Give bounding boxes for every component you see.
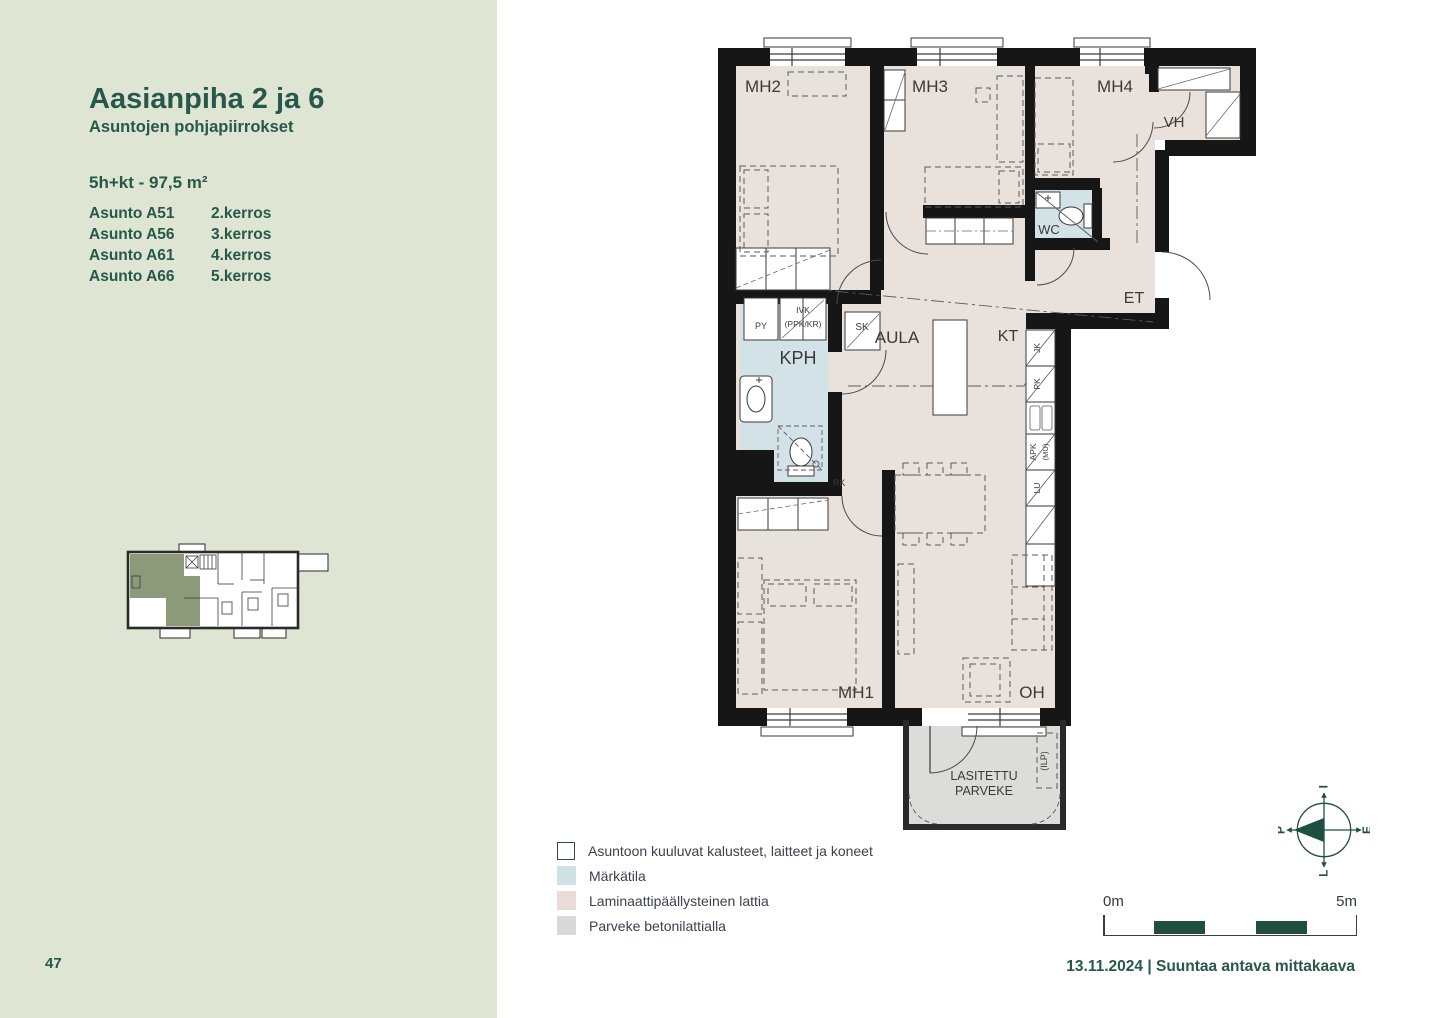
compass-letter-right: E — [1360, 826, 1370, 834]
apartment-row: Asunto A61 4.kerros — [89, 245, 324, 266]
room-label-wc: WC — [1038, 222, 1060, 237]
label-lu: LU — [1032, 483, 1042, 494]
room-label-mh2: MH2 — [745, 77, 781, 96]
balcony-label-1: LASITETTU — [950, 769, 1017, 783]
sidebar: Aasianpiha 2 ja 6 Asuntojen pohjapiirrok… — [0, 0, 497, 1018]
footer-date: 13.11.2024 — [1066, 958, 1143, 975]
legend-row: Märkätila — [557, 866, 873, 885]
scale-end-label: 5m — [1336, 893, 1357, 910]
apartment-floor: 5.kerros — [211, 266, 271, 287]
compass-letter-bottom: L — [1317, 870, 1331, 876]
apartment-floor: 3.kerros — [211, 224, 271, 245]
legend-row: Laminaattipäällysteinen lattia — [557, 891, 873, 910]
floorplan: MH2 MH3 MH4 VH WC ET AULA KT KPH MH1 OH … — [700, 30, 1270, 840]
apartment-row: Asunto A66 5.kerros — [89, 266, 324, 287]
legend-swatch-wet-area — [557, 866, 576, 885]
page-number: 47 — [45, 955, 62, 972]
apartment-type: 5h+kt - 97,5 m² — [89, 173, 324, 193]
label-pk: PK — [1032, 378, 1042, 390]
compass-icon: I E L P — [1278, 784, 1370, 876]
balcony-label-2: PARVEKE — [955, 784, 1013, 798]
label-ilp: (ILP) — [1039, 751, 1049, 771]
footer-separator: | — [1147, 958, 1151, 975]
legend-row: Parveke betonilattialla — [557, 916, 873, 935]
legend-swatch-furniture — [557, 842, 575, 860]
scale-segment — [1256, 921, 1307, 934]
apartment-name: Asunto A66 — [89, 266, 211, 287]
scale-start-label: 0m — [1103, 893, 1124, 910]
apartment-floor: 4.kerros — [211, 245, 271, 266]
legend-swatch-balcony — [557, 916, 576, 935]
label-apk: APK — [1028, 443, 1038, 460]
keyplan-building-overview — [122, 540, 334, 642]
room-label-aula: AULA — [875, 328, 920, 347]
page-title: Aasianpiha 2 ja 6 — [89, 84, 324, 114]
legend: Asuntoon kuuluvat kalusteet, laitteet ja… — [557, 841, 873, 941]
legend-label: Asuntoon kuuluvat kalusteet, laitteet ja… — [588, 843, 873, 859]
apartment-name: Asunto A56 — [89, 224, 211, 245]
compass-letter-left: P — [1278, 826, 1287, 834]
room-label-kph: KPH — [779, 348, 816, 368]
page-subtitle: Asuntojen pohjapiirrokset — [89, 118, 324, 137]
room-label-kt: KT — [998, 328, 1019, 345]
room-label-vh: VH — [1164, 114, 1185, 131]
label-ppk-kr: (PPK/KR) — [785, 319, 822, 329]
room-label-et: ET — [1124, 290, 1145, 307]
scale-track — [1103, 913, 1357, 936]
apartment-floor: 2.kerros — [211, 203, 271, 224]
footer-text: Suuntaa antava mittakaava — [1156, 958, 1355, 975]
label-mu: (MU) — [1041, 443, 1050, 460]
label-rk: RK — [833, 478, 846, 488]
legend-label: Märkätila — [589, 868, 646, 884]
scale-segment — [1154, 921, 1205, 934]
room-label-mh3: MH3 — [912, 77, 948, 96]
apartment-name: Asunto A61 — [89, 245, 211, 266]
legend-label: Parveke betonilattialla — [589, 918, 726, 934]
legend-label: Laminaattipäällysteinen lattia — [589, 893, 769, 909]
room-label-mh4: MH4 — [1097, 77, 1133, 96]
label-sk: SK — [855, 322, 869, 333]
room-label-oh: OH — [1019, 683, 1045, 702]
label-py: PY — [755, 321, 767, 331]
label-ivk: IVK — [796, 305, 810, 315]
compass-letter-top: I — [1317, 785, 1331, 788]
apartment-row: Asunto A51 2.kerros — [89, 203, 324, 224]
room-label-mh1: MH1 — [838, 683, 874, 702]
apartment-row: Asunto A56 3.kerros — [89, 224, 324, 245]
scale-bar: 0m 5m — [1103, 893, 1357, 936]
label-jk: JK — [1032, 343, 1042, 353]
footer-note: 13.11.2024 | Suuntaa antava mittakaava — [1066, 958, 1355, 976]
apartment-name: Asunto A51 — [89, 203, 211, 224]
legend-swatch-laminate — [557, 891, 576, 910]
legend-row: Asuntoon kuuluvat kalusteet, laitteet ja… — [557, 841, 873, 860]
